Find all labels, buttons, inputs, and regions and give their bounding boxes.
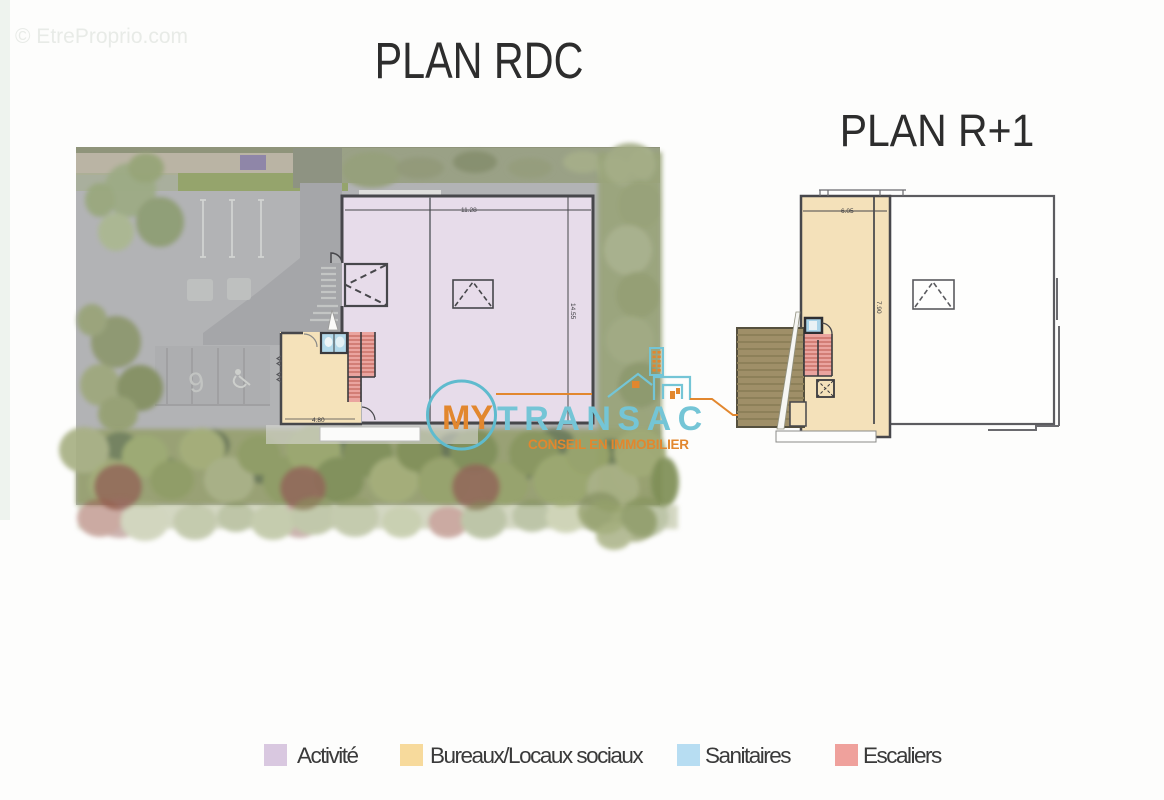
svg-text:6.05: 6.05 xyxy=(841,208,854,215)
svg-text:4.80: 4.80 xyxy=(312,417,325,424)
svg-text:CONSEIL EN IMMOBILIER: CONSEIL EN IMMOBILIER xyxy=(528,437,689,452)
svg-text:Escaliers: Escaliers xyxy=(863,743,942,768)
svg-text:TRANSAC: TRANSAC xyxy=(497,400,709,438)
svg-text:11.28: 11.28 xyxy=(461,207,477,214)
svg-text:14.55: 14.55 xyxy=(569,303,576,320)
svg-text:Sanitaires: Sanitaires xyxy=(705,743,791,768)
svg-text:PLAN RDC: PLAN RDC xyxy=(375,32,584,89)
svg-text:Bureaux/Locaux sociaux: Bureaux/Locaux sociaux xyxy=(430,743,644,768)
svg-text:© EtreProprio.com: © EtreProprio.com xyxy=(15,25,188,48)
svg-text:Activité: Activité xyxy=(297,743,359,768)
svg-text:7.90: 7.90 xyxy=(875,301,882,314)
svg-text:MY: MY xyxy=(442,399,493,437)
svg-text:PLAN R+1: PLAN R+1 xyxy=(840,106,1035,156)
